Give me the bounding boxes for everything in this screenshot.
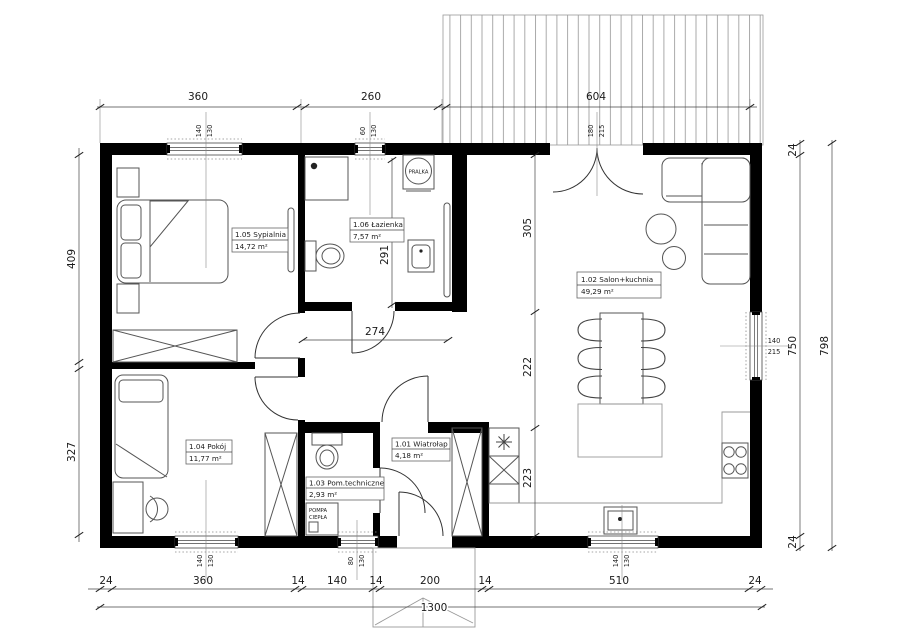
dim-text: 200 — [420, 575, 440, 587]
room-area: 11,77 m² — [189, 454, 222, 463]
dim-text: 798 — [819, 336, 831, 356]
window-dim: 140 — [196, 555, 204, 568]
dim-text: 14 — [369, 575, 383, 587]
room-name: 1.02 Salon+kuchnia — [581, 275, 653, 284]
dim-text: 14 — [478, 575, 492, 587]
room-area: 2,93 m² — [309, 490, 337, 499]
dim-text: 327 — [66, 442, 78, 462]
window-dim: 130 — [207, 555, 215, 568]
room-name: 1.03 Pom.techniczne — [309, 479, 385, 488]
room-area: 14,72 m² — [235, 242, 268, 251]
floor-plan: PRALKA POMPA CIEPŁA — [0, 0, 900, 636]
dim-text: 223 — [522, 468, 534, 488]
heat-pump-label: POMPA — [309, 508, 327, 514]
dim-text: 360 — [193, 575, 213, 587]
washer-label: PRALKA — [409, 170, 429, 176]
window-dim: 140 — [768, 337, 781, 345]
heat-pump-label: CIEPŁA — [309, 515, 327, 521]
room-area: 7,57 m² — [353, 232, 381, 241]
dim-text: 291 — [379, 245, 391, 265]
window-dim: 215 — [768, 348, 781, 356]
dim-text: 510 — [609, 575, 629, 587]
dim-text: 24 — [787, 143, 799, 157]
dim-text: 140 — [327, 575, 347, 587]
door-dim: 180 — [587, 125, 595, 138]
dim-text: 222 — [522, 357, 534, 377]
room-label-pokoj: 1.04 Pokój 11,77 m² — [186, 440, 232, 464]
room-name: 1.04 Pokój — [189, 442, 226, 451]
window-dim: 130 — [370, 125, 378, 138]
room-label-sypialnia: 1.05 Sypialnia 14,72 m² — [232, 228, 288, 252]
room-label-wiatrolap: 1.01 Wiatrołap 4,18 m² — [392, 438, 450, 461]
room-name: 1.06 Łazienka — [353, 220, 403, 229]
dim-total: 1300 — [421, 602, 448, 614]
window-dim: 130 — [206, 125, 214, 138]
dim-text: 360 — [188, 91, 208, 103]
window-dim: 60 — [359, 127, 367, 135]
window-dim: 140 — [195, 125, 203, 138]
room-area: 49,29 m² — [581, 287, 614, 296]
door-dim: 215 — [598, 125, 606, 138]
window-dim: 130 — [358, 555, 366, 568]
dim-text: 14 — [291, 575, 305, 587]
dim-text: 274 — [365, 326, 385, 338]
room-name: 1.01 Wiatrołap — [395, 440, 448, 449]
window-dim: 80 — [347, 557, 355, 565]
dim-text: 260 — [361, 91, 381, 103]
dim-text: 305 — [522, 218, 534, 238]
window-dim: 130 — [623, 555, 631, 568]
dim-text: 24 — [787, 535, 799, 549]
dim-text: 409 — [66, 249, 78, 269]
room-label-techniczne: 1.03 Pom.techniczne 2,93 m² — [306, 477, 385, 500]
window-dim: 140 — [612, 555, 620, 568]
room-label-salon: 1.02 Salon+kuchnia 49,29 m² — [577, 272, 661, 298]
room-name: 1.05 Sypialnia — [235, 230, 286, 239]
room-area: 4,18 m² — [395, 451, 423, 460]
dim-text: 24 — [748, 575, 762, 587]
dim-text: 604 — [586, 91, 606, 103]
dim-text: 24 — [99, 575, 113, 587]
room-label-lazienka: 1.06 Łazienka 7,57 m² — [350, 218, 404, 242]
